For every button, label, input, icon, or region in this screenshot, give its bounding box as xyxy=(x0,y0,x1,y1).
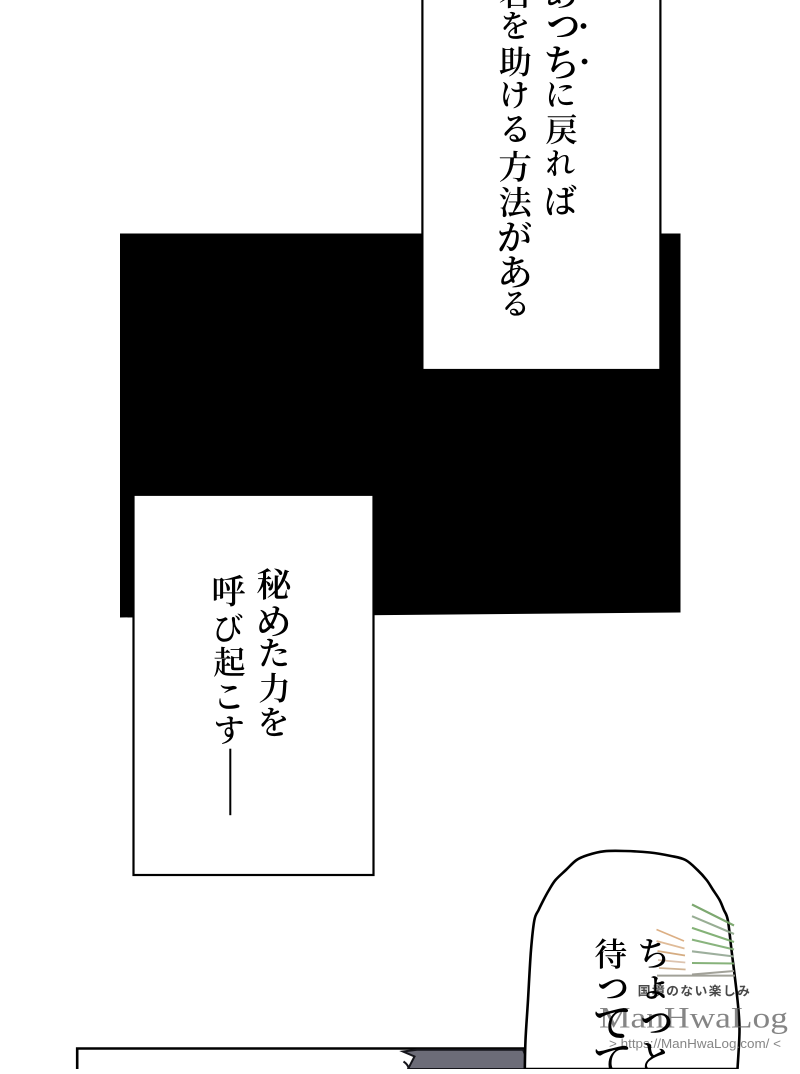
svg-text:ManHwaLog: ManHwaLog xyxy=(599,1002,788,1035)
svg-text:> https://ManHwaLog.com/ <: > https://ManHwaLog.com/ < xyxy=(609,1037,781,1051)
